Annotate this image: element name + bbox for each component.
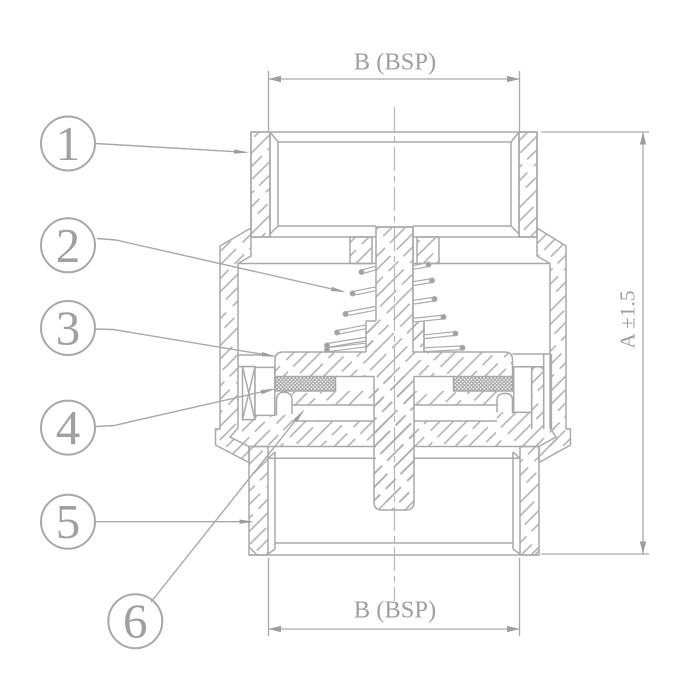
svg-text:6: 6 (123, 594, 148, 649)
svg-text:A ±1.5: A ±1.5 (616, 290, 640, 348)
svg-text:4: 4 (56, 400, 81, 455)
svg-text:1: 1 (56, 116, 81, 171)
svg-text:B (BSP): B (BSP) (354, 597, 436, 624)
svg-text:B (BSP): B (BSP) (354, 49, 436, 76)
svg-text:2: 2 (56, 218, 81, 273)
svg-text:3: 3 (56, 301, 81, 356)
svg-text:5: 5 (56, 494, 81, 549)
